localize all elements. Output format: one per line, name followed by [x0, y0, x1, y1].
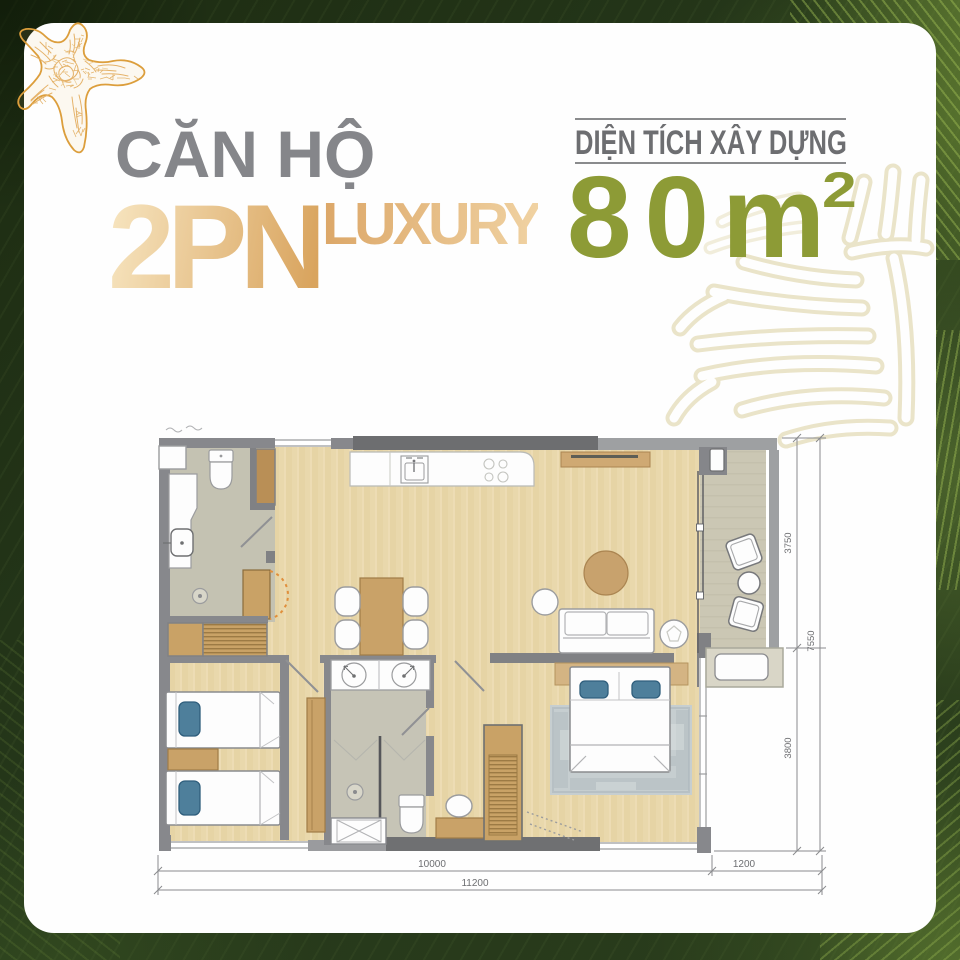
svg-text:11200: 11200 [461, 878, 489, 889]
svg-text:10000: 10000 [418, 859, 446, 870]
svg-text:7550: 7550 [806, 630, 817, 651]
svg-text:1200: 1200 [733, 859, 756, 870]
svg-text:3800: 3800 [783, 737, 794, 758]
svg-text:3750: 3750 [783, 532, 794, 553]
